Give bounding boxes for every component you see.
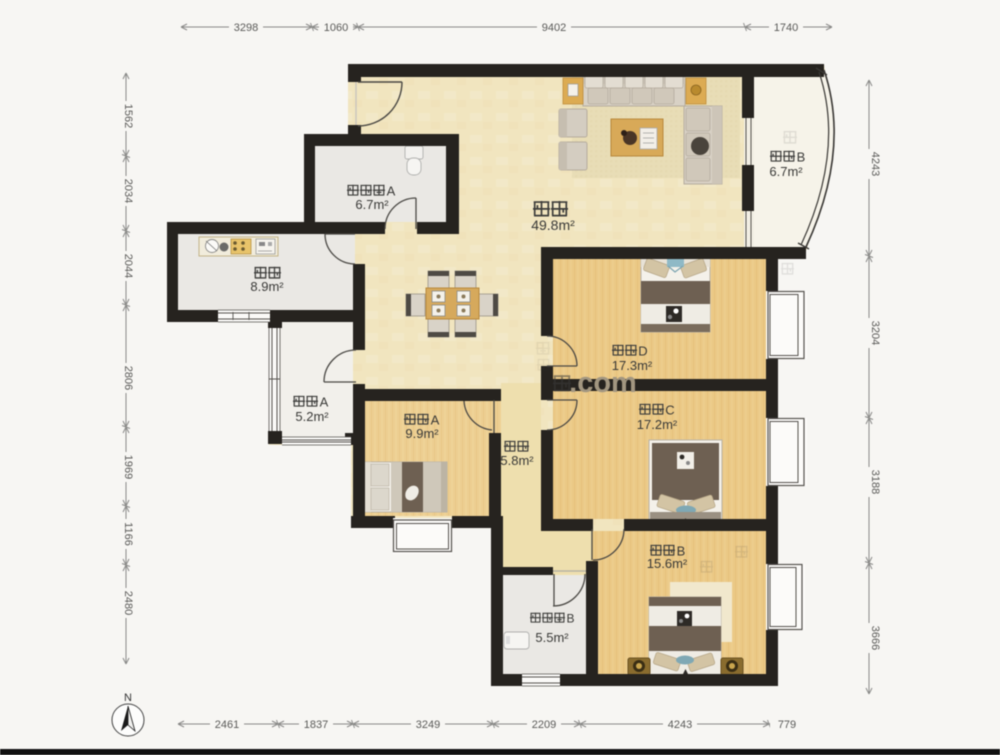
- svg-text:9402: 9402: [542, 22, 566, 34]
- svg-text:5.2m²: 5.2m²: [295, 409, 329, 424]
- svg-text:15.6m²: 15.6m²: [647, 556, 688, 571]
- svg-text:2209: 2209: [532, 719, 556, 731]
- svg-text:6.7m²: 6.7m²: [769, 164, 803, 179]
- svg-text:17.2m²: 17.2m²: [637, 417, 678, 432]
- svg-text:5.8m²: 5.8m²: [500, 453, 534, 468]
- svg-text:779: 779: [778, 719, 796, 731]
- svg-text:49.8m²: 49.8m²: [531, 217, 575, 233]
- svg-text:5.5m²: 5.5m²: [535, 630, 569, 645]
- svg-text:1969: 1969: [122, 455, 134, 479]
- svg-text:6.7m²: 6.7m²: [355, 197, 389, 212]
- svg-text:9.9m²: 9.9m²: [405, 426, 439, 441]
- svg-text:2044: 2044: [122, 254, 134, 278]
- svg-text:2034: 2034: [122, 179, 134, 203]
- svg-text:2480: 2480: [122, 591, 134, 615]
- svg-text:3666: 3666: [869, 626, 881, 650]
- svg-text:8.9m²: 8.9m²: [250, 279, 284, 294]
- svg-text:1562: 1562: [122, 104, 134, 128]
- svg-text:3298: 3298: [234, 22, 258, 34]
- svg-text:4243: 4243: [668, 719, 692, 731]
- svg-text:2806: 2806: [122, 366, 134, 390]
- svg-text:4243: 4243: [869, 152, 881, 176]
- svg-text:3249: 3249: [416, 719, 440, 731]
- svg-text:.com: .com: [569, 367, 637, 399]
- svg-text:3204: 3204: [869, 321, 881, 345]
- svg-text:1740: 1740: [774, 22, 798, 34]
- svg-text:1837: 1837: [304, 719, 328, 731]
- svg-text:3188: 3188: [869, 470, 881, 494]
- svg-text:C: C: [665, 403, 674, 418]
- svg-text:B: B: [567, 612, 575, 626]
- svg-text:2461: 2461: [215, 719, 239, 731]
- svg-text:N: N: [124, 692, 132, 704]
- svg-text:1166: 1166: [122, 522, 134, 546]
- svg-text:1060: 1060: [324, 22, 348, 34]
- svg-text:A: A: [320, 395, 329, 410]
- svg-text:D: D: [638, 344, 647, 359]
- svg-text:B: B: [797, 150, 806, 165]
